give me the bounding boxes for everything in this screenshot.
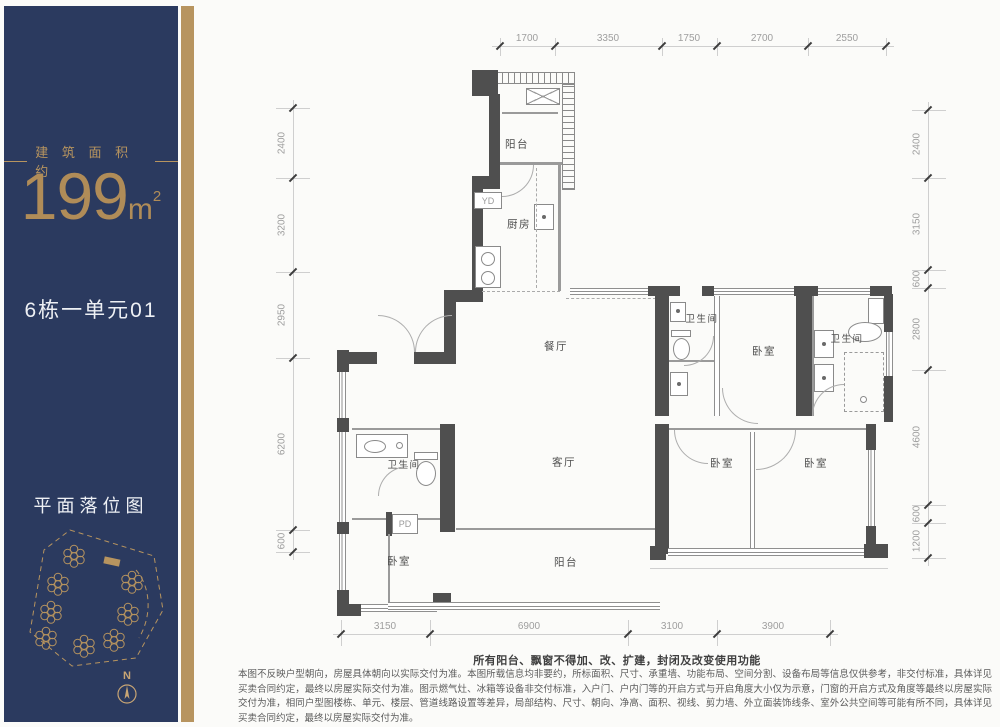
dim-label: 600 xyxy=(912,271,923,288)
wall xyxy=(655,296,669,416)
faucet-icon xyxy=(396,442,403,449)
dim-label: 3350 xyxy=(597,33,619,44)
dining-dashed-line xyxy=(566,298,656,299)
dim-label: 2700 xyxy=(751,33,773,44)
disclaimer-headline: 所有阳台、飘窗不得加、改、扩建，封闭及改变使用功能 xyxy=(237,652,997,668)
compass-icon xyxy=(116,683,138,705)
balcony-edge xyxy=(388,534,390,604)
wall xyxy=(472,70,498,96)
wall xyxy=(702,286,714,296)
slab-edge-line xyxy=(650,568,888,569)
wall-thin xyxy=(352,428,440,430)
dim-line xyxy=(333,634,838,635)
basin-dot xyxy=(822,376,826,380)
basin-dot xyxy=(677,382,681,386)
wall xyxy=(866,424,876,450)
sink-basin xyxy=(364,440,386,453)
wall xyxy=(337,522,349,534)
floorplan-page: 建 筑 面 积 约 199m2 6栋一单元01 平面落位图 xyxy=(0,0,1000,727)
fridge-handle-dot xyxy=(542,215,546,219)
area-number: 199 xyxy=(21,159,128,233)
burner-icon xyxy=(481,271,495,285)
wall xyxy=(655,424,669,554)
shaft-pd-label: PD xyxy=(399,519,412,529)
dim-label: 2400 xyxy=(912,133,923,155)
area-superscript: 2 xyxy=(153,188,161,205)
wall xyxy=(794,286,818,296)
dim-line xyxy=(928,102,929,566)
ac-unit-box xyxy=(526,88,560,105)
wall xyxy=(337,350,349,372)
wall xyxy=(650,546,666,560)
room-label-bed-left: 卧室 xyxy=(387,554,411,569)
window xyxy=(339,432,346,522)
window xyxy=(339,534,346,590)
wall xyxy=(349,352,377,364)
dim-label: 6200 xyxy=(277,433,288,455)
window xyxy=(714,288,794,295)
room-label-dining: 餐厅 xyxy=(544,339,568,354)
dim-label: 6900 xyxy=(518,621,540,632)
dim-label: 3900 xyxy=(762,621,784,632)
dim-line xyxy=(293,100,294,560)
room-label-balcony-bottom: 阳台 xyxy=(554,555,578,570)
room-label-balcony-top: 阳台 xyxy=(505,137,529,152)
window xyxy=(570,288,648,295)
wall xyxy=(440,424,455,532)
balcony-railing xyxy=(388,602,660,610)
building-clusters xyxy=(36,545,142,657)
wall-double xyxy=(750,432,755,550)
wall xyxy=(489,94,500,178)
dim-label: 1200 xyxy=(912,530,923,552)
shaft-yd: YD xyxy=(474,192,502,209)
entry-door-arc xyxy=(415,315,452,352)
room-label-bed-bottom-right: 卧室 xyxy=(804,456,828,471)
wall-thin xyxy=(558,165,561,291)
north-label: N xyxy=(110,670,144,682)
basin-dot xyxy=(676,309,680,313)
siteplan-sketch xyxy=(18,522,166,668)
room-label-kitchen: 厨房 xyxy=(507,217,531,232)
washer xyxy=(868,298,884,324)
dim-label: 3150 xyxy=(912,213,923,235)
unit-name: 6栋一单元01 xyxy=(4,294,178,324)
dim-label: 3150 xyxy=(374,621,396,632)
shaft-yd-label: YD xyxy=(482,196,495,206)
dim-label: 600 xyxy=(912,506,923,523)
wall xyxy=(864,544,888,558)
bedroom-door-arc xyxy=(674,430,708,464)
shower-area xyxy=(844,352,884,412)
room-label-bath-right: 卫生间 xyxy=(830,331,863,345)
wall xyxy=(796,296,812,416)
wall xyxy=(444,290,483,302)
room-label-bed-top: 卧室 xyxy=(752,344,776,359)
basin-dot xyxy=(822,342,826,346)
door-arc-kitchen-balcony xyxy=(502,165,534,197)
window xyxy=(868,450,875,526)
dim-label: 1700 xyxy=(516,33,538,44)
wall xyxy=(337,604,361,616)
dim-label: 4600 xyxy=(912,426,923,448)
room-label-bath-left: 卫生间 xyxy=(387,457,420,471)
disclaimer-body: 本图不反映户型朝向，房屋具体朝向以实际交付为准。本图所载信息均非要约，所标面积、… xyxy=(238,668,992,727)
dim-label: 2800 xyxy=(912,318,923,340)
kitchen-opening-dashed xyxy=(482,291,560,292)
room-label-living: 客厅 xyxy=(552,455,576,470)
entry-door-arc xyxy=(378,315,415,352)
wall xyxy=(648,286,680,296)
dim-label: 2400 xyxy=(277,132,288,154)
siteplan-title: 平面落位图 xyxy=(4,492,178,518)
wall xyxy=(884,294,893,332)
bedroom-door-arc xyxy=(756,430,796,470)
north-compass: N xyxy=(110,670,144,710)
balcony-shelf-line xyxy=(502,112,558,114)
dim-label: 600 xyxy=(277,533,288,550)
bedroom-door-arc xyxy=(722,388,758,424)
wall xyxy=(414,352,456,364)
window xyxy=(339,372,346,418)
dim-label: 2950 xyxy=(277,304,288,326)
drain-icon xyxy=(860,396,867,403)
sliding-door-line xyxy=(456,528,660,530)
window xyxy=(668,548,866,556)
wall xyxy=(884,376,893,422)
room-label-bath-mid: 卫生间 xyxy=(685,311,718,325)
wall xyxy=(472,176,500,189)
window xyxy=(818,288,870,295)
shaft-pd: PD xyxy=(392,514,418,534)
gold-accent-stripe xyxy=(181,6,194,722)
dim-label: 2550 xyxy=(836,33,858,44)
sidebar: 建 筑 面 积 约 199m2 6栋一单元01 平面落位图 xyxy=(4,6,178,722)
dim-label: 3200 xyxy=(277,214,288,236)
room-label-bed-bottom-mid: 卧室 xyxy=(710,456,734,471)
kitchen-dashed-line xyxy=(536,168,537,288)
dim-label: 3100 xyxy=(661,621,683,632)
window xyxy=(886,332,893,376)
balcony-hatch-right xyxy=(562,84,575,190)
area-value: 199m2 xyxy=(4,158,178,234)
dim-label: 1750 xyxy=(678,33,700,44)
burner-icon xyxy=(481,252,495,266)
wall xyxy=(337,418,349,432)
area-unit: m xyxy=(128,193,153,226)
